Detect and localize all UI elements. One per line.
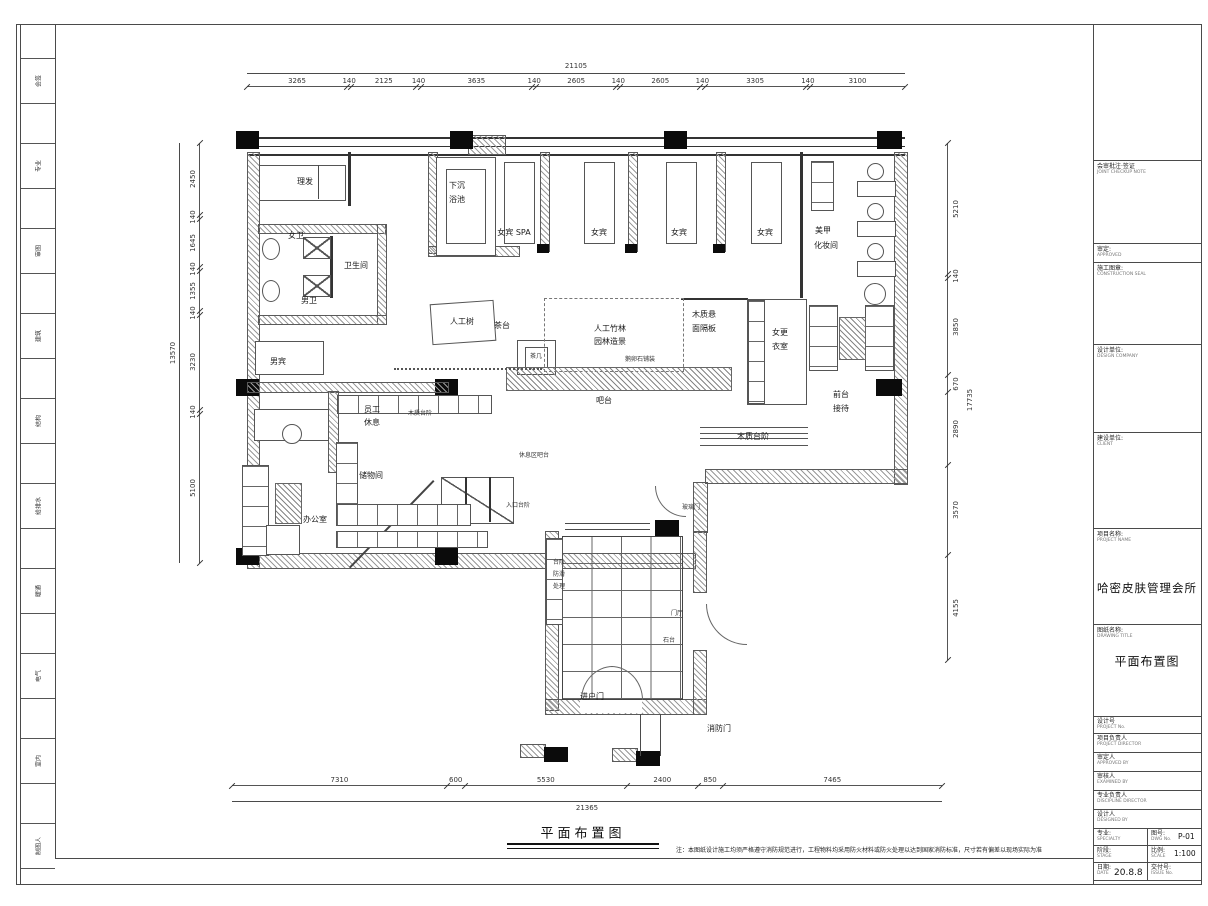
room-label-guest: 女宾 (671, 229, 687, 237)
stub-wall (612, 748, 638, 762)
tb-divider (1093, 845, 1201, 846)
room-label-nail: 化妆间 (814, 242, 838, 250)
wall-endcap (713, 244, 725, 253)
dim-total-top: 21105 (565, 62, 587, 70)
room-label-pool: 下沉 (449, 182, 465, 190)
signoff-box: 建筑 (21, 313, 55, 359)
sofa (811, 161, 834, 211)
tb-field-sub: DISCIPLINE DIRECTOR (1097, 799, 1147, 804)
dim-chain-left: 24501401645140135514032301405100 (199, 143, 200, 563)
tb-spec: 专业:SPECIALTY (1097, 830, 1120, 843)
sheet-title: 平面布置图 (540, 823, 625, 842)
label-antislip: 防滑 (553, 572, 565, 578)
tb-field: 审定人APPROVED BY (1097, 754, 1129, 767)
rug (275, 483, 302, 524)
tb-scale-sub: SCALE (1151, 854, 1165, 859)
partition (348, 152, 351, 206)
tb-divider (1093, 880, 1201, 881)
tb-client-sub: CLIENT (1097, 442, 1123, 447)
tb-field: 设计人DESIGNED BY (1097, 811, 1128, 824)
room-label-toilet: 卫生间 (344, 262, 368, 270)
tb-dwg-no-sub: DWG No. (1151, 837, 1171, 842)
office-chair (282, 424, 302, 444)
tb-client: 建设单位:CLIENT (1097, 435, 1123, 448)
label-bamboo: 人工竹林 (594, 325, 626, 333)
label-pebble: 鹅卵石铺装 (625, 357, 655, 363)
tb-seal-sub: CONSTRUCTION SEAL (1097, 272, 1146, 277)
column (236, 131, 259, 149)
signoff-label: 专业 (34, 160, 43, 172)
signoff-box: 电气 (21, 653, 55, 699)
makeup-table (857, 181, 896, 197)
panel-wall (681, 298, 748, 300)
fire-door-swing (706, 604, 747, 645)
tb-date-sub: DATE (1097, 871, 1111, 876)
wall-endcap (625, 244, 637, 253)
note-divider (55, 858, 1093, 859)
room-label-staff: 员工 (364, 406, 380, 414)
spa-partition (716, 152, 726, 252)
label-tea: 茶台 (494, 322, 510, 330)
room-label-spa: 女宾 SPA (497, 229, 530, 237)
dim-total-line-left (179, 143, 180, 563)
titleblock-left-border (1093, 24, 1094, 884)
tb-divider (1093, 790, 1201, 791)
wall-right (894, 152, 908, 485)
room-label-male-guest: 男宾 (270, 358, 286, 366)
dim-chain-top: 3265140212514036351402605140260514033051… (247, 86, 905, 87)
stub-wall (520, 744, 546, 758)
tb-divider (1093, 432, 1201, 433)
door-opening (580, 700, 642, 713)
dim-total-line-bottom (232, 801, 942, 802)
tb-field: 项目负责人PROJECT DIRECTOR (1097, 735, 1141, 748)
label-foyer: 门厅 (671, 611, 683, 617)
dim-total-bottom: 21365 (576, 804, 598, 812)
wall-rightwing-bottom (705, 469, 908, 484)
tb-divider (1093, 528, 1201, 529)
label-steps-right: 木质台阶 (737, 433, 769, 441)
tb-project-name: 哈密皮肤管理会所 (1097, 580, 1197, 596)
tb-divider (1093, 262, 1201, 263)
toilet-bowl (262, 238, 280, 260)
sofa (865, 305, 894, 371)
room-label-reception: 接待 (833, 405, 849, 413)
tb-review: 会审批注·签证JOINT CHECKUP NOTE (1097, 163, 1146, 176)
hatched-wall (468, 135, 506, 155)
lockers (748, 300, 765, 404)
column (876, 379, 902, 396)
rug (839, 317, 866, 360)
tb-field: 专业负责人DISCIPLINE DIRECTOR (1097, 792, 1147, 805)
room-label-dressing: 衣室 (772, 343, 788, 351)
tb-divider (1093, 243, 1201, 244)
tb-design-no: 设计号PROJECT No. (1097, 718, 1125, 731)
stool (864, 283, 886, 305)
sheet-title-underline (507, 843, 659, 849)
tb-dwg-no: 图号:DWG No. (1151, 830, 1171, 843)
room-label-toilet-f: 女卫 (288, 232, 304, 240)
toilet-wall-top (258, 224, 386, 234)
bar-counter (506, 367, 732, 391)
tb-divider (1093, 624, 1201, 625)
toilet-wall-bottom (258, 315, 387, 325)
signoff-label: 给排水 (34, 497, 43, 515)
label-entry-door: 进户门 (580, 693, 604, 701)
stool (867, 203, 884, 220)
room-label-barber: 理发 (297, 178, 313, 186)
corridor-line (640, 714, 641, 756)
stool (867, 243, 884, 260)
label-antislip: 处理 (553, 584, 565, 590)
tb-stage: 阶段:STAGE (1097, 847, 1112, 860)
room-label-reception: 前台 (833, 391, 849, 399)
signoff-strip-line-inner (55, 24, 56, 858)
tb-divider (1093, 771, 1201, 772)
tb-drawing-sub: DRAWING TITLE (1097, 634, 1132, 639)
label-entry-steps: 入口台阶 (506, 503, 530, 509)
tb-drawing-name: 平面布置图 (1114, 653, 1179, 670)
label-antislip: 台阶 (553, 560, 565, 566)
tb-date: 日期:DATE (1097, 864, 1111, 877)
column (877, 131, 902, 149)
bamboo-landscape-area (544, 298, 684, 372)
spa-partition (540, 152, 550, 252)
label-bar: 吧台 (596, 397, 612, 405)
stool (867, 163, 884, 180)
tb-design-no-sub: PROJECT No. (1097, 725, 1125, 730)
tb-firm: 设计单位:DESIGN COMPANY (1097, 347, 1138, 360)
tb-date-value: 20.8.8 (1114, 868, 1143, 878)
toilet-stall (303, 275, 331, 297)
label-tree: 人工树 (450, 318, 474, 326)
sheet-note: 注：本图纸设计施工均须严格遵守消防规范进行，工程物料均采用防火材料或防火处理以达… (676, 845, 1090, 854)
room-label-nail: 美甲 (815, 227, 831, 235)
column (544, 747, 568, 762)
frame-bottom (16, 884, 1202, 885)
wall-endcap (537, 244, 549, 253)
tb-divider (1093, 344, 1201, 345)
tb-field-sub: DESIGNED BY (1097, 818, 1128, 823)
room-label-toilet-m: 男卫 (301, 297, 317, 305)
tb-seal: 施工图章:CONSTRUCTION SEAL (1097, 265, 1146, 278)
dim-total-left: 13570 (169, 342, 177, 364)
tb-stage-sub: STAGE (1097, 854, 1112, 859)
room-label-storage: 储物间 (359, 472, 383, 480)
glass-door-swing (655, 486, 686, 517)
signoff-box: 结构 (21, 398, 55, 444)
signoff-box: 制图人 (21, 823, 55, 869)
tb-field-sub: EXAMINED BY (1097, 780, 1128, 785)
signoff-box: 暖通 (21, 568, 55, 614)
tb-approve: 审定:APPROVED (1097, 246, 1121, 259)
signoff-box: 审图 (21, 228, 55, 274)
signoff-label: 建筑 (34, 330, 43, 342)
label-tea-table: 茶几 (530, 354, 542, 360)
dim-chain-bottom: 7310600553024008507465 (232, 785, 942, 786)
tb-drawing-label: 图纸名称:DRAWING TITLE (1097, 627, 1132, 640)
signoff-box: 给排水 (21, 483, 55, 529)
room-label-guest: 女宾 (591, 229, 607, 237)
tb-divider (1093, 733, 1201, 734)
signoff-box: 室内 (21, 738, 55, 784)
frame-left (16, 24, 17, 885)
tb-field: 审核人EXAMINED BY (1097, 773, 1128, 786)
makeup-table (857, 261, 896, 277)
office-sofa (242, 465, 269, 556)
sofa (809, 305, 838, 371)
frame-right (1201, 24, 1202, 885)
dim-total-right: 17735 (966, 389, 974, 411)
room-label-pool: 浴池 (449, 196, 465, 204)
toilet-wall-right (377, 224, 387, 325)
tb-project-label: 项目名称:PROJECT NAME (1097, 531, 1131, 544)
decor-screen-line (394, 368, 542, 370)
toilet-stall (303, 237, 331, 259)
column (435, 548, 458, 565)
room-label-dressing: 女更 (772, 329, 788, 337)
tb-scale-value: 1:100 (1174, 849, 1196, 858)
bench (336, 531, 488, 548)
tb-review-sub: JOINT CHECKUP NOTE (1097, 170, 1146, 175)
column (664, 131, 687, 149)
label-fire-door: 消防门 (707, 725, 731, 733)
signoff-label: 审图 (34, 245, 43, 257)
tb-field-sub: PROJECT DIRECTOR (1097, 742, 1141, 747)
label-lounge-bar: 休息区吧台 (519, 453, 549, 459)
entrance-shelf (546, 538, 563, 625)
column (450, 131, 473, 149)
frame-top (16, 24, 1202, 25)
toilet-bowl (262, 280, 280, 302)
tb-divider (1093, 716, 1201, 717)
railing-bar (489, 477, 491, 522)
tb-spec-sub: SPECIALTY (1097, 837, 1120, 842)
makeup-table (857, 221, 896, 237)
wall-midleft (247, 382, 449, 393)
tb-divider (1093, 809, 1201, 810)
step-line (565, 529, 650, 530)
tb-divider (1093, 752, 1201, 753)
signoff-label: 室内 (34, 755, 43, 767)
bed-headboard (318, 165, 319, 199)
entrance-wall-right-upper (693, 531, 707, 593)
tb-divider (1093, 862, 1201, 863)
window-wall-top (247, 137, 905, 156)
signoff-box: 会签 (21, 58, 55, 104)
tb-project-sub: PROJECT NAME (1097, 538, 1131, 543)
spa-partition (628, 152, 638, 252)
signoff-label: 结构 (34, 415, 43, 427)
tb-divider (1093, 160, 1201, 161)
room-label-guest: 女宾 (757, 229, 773, 237)
label-glass-door: 玻璃门 (682, 505, 700, 511)
label-panel: 木质悬 (692, 311, 716, 319)
tb-delivery: 交付号:ISSUE No. (1151, 864, 1173, 877)
tb-firm-sub: DESIGN COMPANY (1097, 354, 1138, 359)
entrance-wall-right-lower (693, 650, 707, 715)
label-stone: 石台 (663, 638, 675, 644)
tb-scale: 比例:SCALE (1151, 847, 1165, 860)
column (655, 520, 679, 536)
tb-approve-sub: APPROVED (1097, 253, 1121, 258)
corridor-line (660, 714, 661, 756)
signoff-label: 制图人 (34, 837, 43, 855)
armchair (266, 525, 300, 555)
step-line (565, 523, 650, 524)
signoff-label: 会签 (34, 75, 43, 87)
tb-dwg-no-value: P-01 (1178, 832, 1195, 841)
signoff-box: 专业 (21, 143, 55, 189)
room-label-office: 办公室 (303, 516, 327, 524)
room-label-staff: 休息 (364, 419, 380, 427)
label-panel: 面隔板 (692, 325, 716, 333)
label-steps-left: 木质台阶 (408, 411, 432, 417)
tb-grid-divider (1147, 828, 1148, 880)
label-bamboo: 园林造景 (594, 338, 626, 346)
storage-sofa-horizontal (336, 504, 471, 526)
dim-total-line-top (247, 73, 905, 74)
tb-field-sub: APPROVED BY (1097, 761, 1129, 766)
tb-delivery-sub: ISSUE No. (1151, 871, 1173, 876)
nailroom-wall (800, 152, 803, 298)
dim-chain-right: 52101403850670289035704155 (947, 143, 948, 660)
signoff-label: 暖通 (34, 585, 43, 597)
massage-bed (255, 341, 324, 375)
signoff-label: 电气 (34, 670, 43, 682)
